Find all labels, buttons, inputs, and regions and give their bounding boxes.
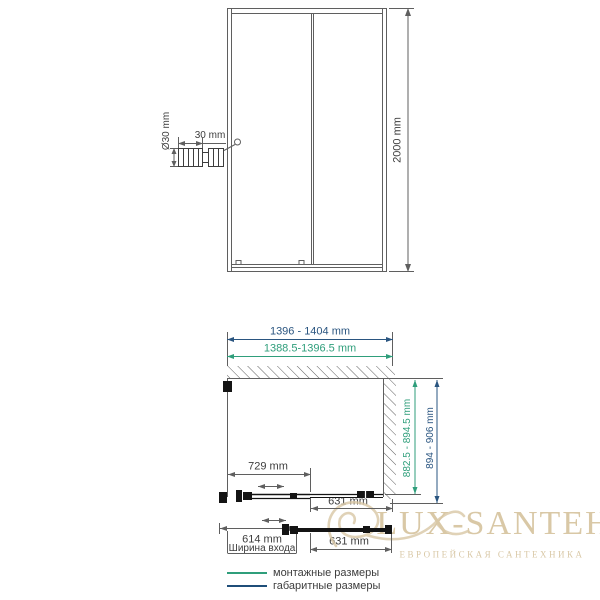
handle-detail	[170, 137, 226, 167]
height-dimension	[389, 8, 414, 272]
door-handle-mark	[235, 139, 241, 145]
plan-view	[219, 332, 443, 512]
door-plan-open	[282, 524, 392, 535]
top-wall-hatch	[227, 366, 395, 378]
door-plan-closed	[219, 490, 383, 503]
front-view	[224, 9, 387, 272]
technical-drawing-page: 2000 mm Ø30 mm 30 mm 1396 - 1404 mm 1388…	[0, 0, 600, 600]
right-wall-hatch	[383, 378, 396, 499]
wall-profile-mark	[223, 381, 232, 392]
drawing-linework	[0, 0, 600, 600]
entrance-view	[219, 518, 392, 554]
